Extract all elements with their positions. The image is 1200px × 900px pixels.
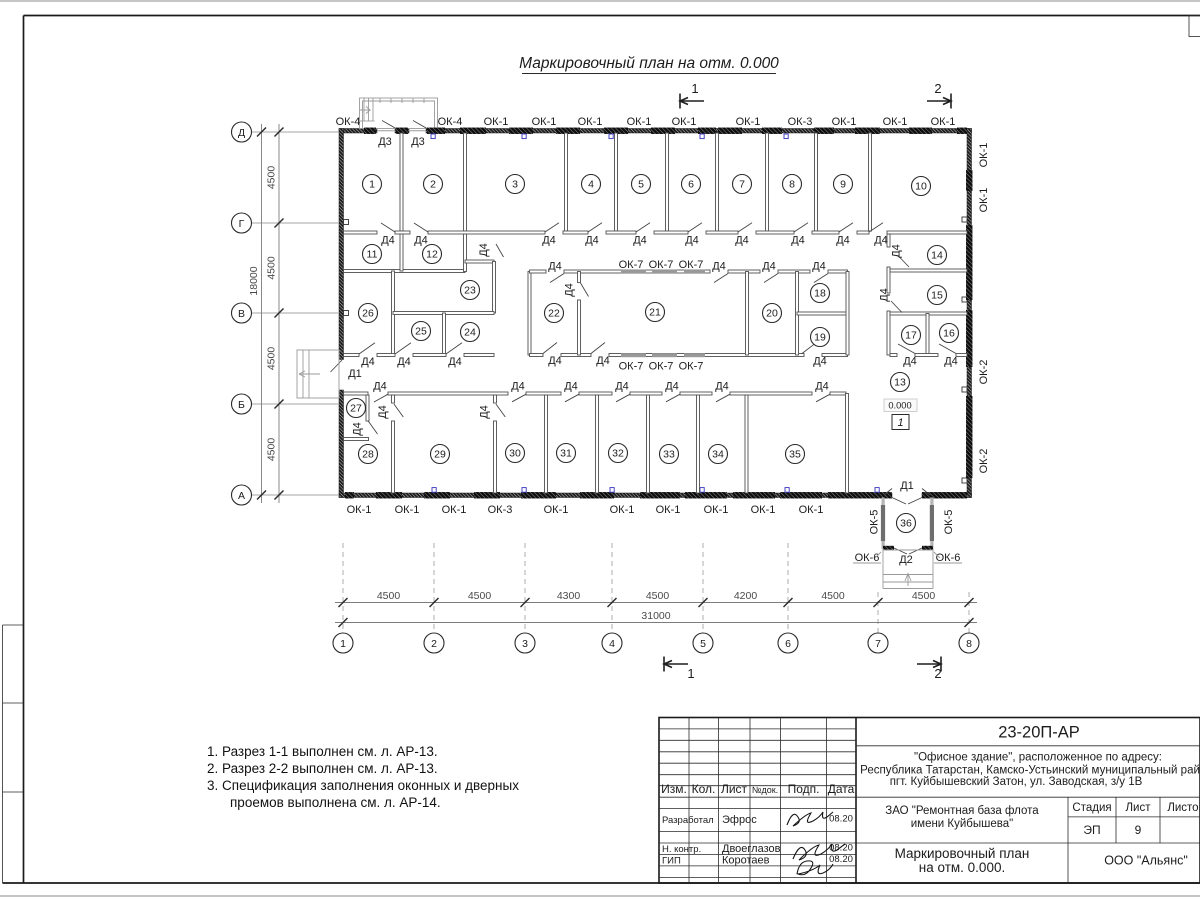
svg-text:15: 15 (931, 290, 943, 302)
svg-text:Лист: Лист (1126, 802, 1152, 814)
svg-text:ОК-1: ОК-1 (544, 504, 569, 516)
svg-text:14: 14 (931, 250, 943, 262)
svg-text:4500: 4500 (266, 256, 278, 280)
svg-text:ОК-1: ОК-1 (978, 188, 990, 213)
svg-text:Г: Г (239, 218, 245, 230)
svg-text:Д4: Д4 (548, 261, 562, 273)
svg-text:18: 18 (814, 288, 826, 300)
svg-text:10: 10 (915, 181, 927, 193)
svg-text:ОК-7: ОК-7 (679, 361, 704, 373)
svg-text:1: 1 (340, 638, 346, 650)
svg-text:Д4: Д4 (735, 235, 749, 247)
svg-text:ЗАО "Ремонтная база флота: ЗАО "Ремонтная база флота (885, 805, 1039, 817)
svg-text:Д4: Д4 (397, 356, 411, 368)
svg-text:18000: 18000 (248, 266, 260, 295)
svg-text:4: 4 (588, 179, 594, 191)
svg-text:Д4: Д4 (361, 356, 375, 368)
svg-text:Стадия: Стадия (1072, 802, 1111, 814)
svg-text:на отм. 0.000.: на отм. 0.000. (919, 860, 1005, 875)
svg-text:12: 12 (426, 249, 438, 261)
svg-text:ОК-5: ОК-5 (943, 510, 955, 535)
svg-text:ОК-1: ОК-1 (883, 116, 908, 128)
svg-text:4500: 4500 (468, 590, 492, 602)
svg-text:Д4: Д4 (448, 356, 462, 368)
svg-text:Республика Татарстан, Камско-У: Республика Татарстан, Камско-Устьинский … (860, 765, 1200, 777)
svg-text:6: 6 (688, 179, 694, 191)
svg-text:33: 33 (663, 449, 675, 461)
svg-text:ОК-4: ОК-4 (438, 116, 463, 128)
svg-text:4200: 4200 (734, 590, 758, 602)
svg-text:Д4: Д4 (903, 356, 917, 368)
svg-text:ОК-3: ОК-3 (788, 116, 813, 128)
svg-text:1: 1 (897, 417, 903, 429)
svg-text:ОК-1: ОК-1 (832, 116, 857, 128)
svg-text:4500: 4500 (821, 590, 845, 602)
svg-text:ОК-1: ОК-1 (931, 116, 956, 128)
svg-text:23-20П-АР: 23-20П-АР (998, 724, 1080, 742)
svg-text:Дата: Дата (828, 782, 855, 796)
svg-text:ОК-1: ОК-1 (978, 143, 990, 168)
svg-text:4300: 4300 (557, 590, 581, 602)
svg-text:ОК-1: ОК-1 (627, 116, 652, 128)
svg-text:ОК-2: ОК-2 (978, 449, 990, 474)
svg-text:Д4: Д4 (564, 381, 578, 393)
svg-text:В: В (238, 308, 245, 320)
svg-text:Д4: Д4 (478, 243, 490, 257)
svg-text:Д4: Д4 (633, 235, 647, 247)
svg-text:4500: 4500 (266, 166, 278, 190)
svg-text:Д: Д (238, 127, 245, 139)
svg-text:Эфрос: Эфрос (722, 814, 757, 826)
svg-text:Маркировочный план: Маркировочный план (895, 846, 1030, 861)
svg-text:ОК-1: ОК-1 (672, 116, 697, 128)
svg-text:28: 28 (362, 449, 374, 461)
svg-text:17: 17 (905, 330, 917, 342)
svg-text:34: 34 (712, 449, 724, 461)
svg-text:1. Разрез 1-1 выполнен см. л.: 1. Разрез 1-1 выполнен см. л. АР-13. (207, 744, 438, 759)
svg-text:пгт. Куйбышевский Затон, ул. З: пгт. Куйбышевский Затон, ул. Заводская, … (890, 776, 1143, 788)
svg-text:Д4: Д4 (373, 381, 387, 393)
svg-text:ОК-1: ОК-1 (484, 116, 509, 128)
svg-text:Д4: Д4 (548, 355, 562, 367)
svg-text:6: 6 (785, 638, 791, 650)
svg-text:Разработал: Разработал (662, 815, 714, 826)
svg-text:08.20: 08.20 (829, 814, 853, 825)
svg-text:ООО "Альянс": ООО "Альянс" (1104, 854, 1188, 868)
svg-text:Д4: Д4 (891, 244, 903, 258)
svg-text:5: 5 (638, 179, 644, 191)
svg-text:4500: 4500 (266, 347, 278, 371)
svg-text:Маркировочный план на отм. 0.0: Маркировочный план на отм. 0.000 (519, 55, 779, 72)
svg-text:Д4: Д4 (944, 356, 958, 368)
svg-text:Д4: Д4 (762, 261, 776, 273)
svg-text:2: 2 (934, 81, 941, 96)
svg-text:ОК-1: ОК-1 (751, 504, 776, 516)
svg-text:Коротаев: Коротаев (722, 855, 770, 867)
svg-text:21: 21 (649, 307, 661, 319)
svg-text:ОК-5: ОК-5 (869, 510, 881, 535)
svg-text:Д1: Д1 (900, 480, 914, 492)
svg-text:ОК-1: ОК-1 (347, 504, 372, 516)
svg-text:ОК-1: ОК-1 (799, 504, 824, 516)
svg-text:9: 9 (1135, 823, 1142, 837)
svg-text:А: А (238, 490, 245, 502)
svg-text:3. Спецификация заполнения око: 3. Спецификация заполнения оконных и две… (207, 778, 519, 793)
svg-text:Д4: Д4 (414, 235, 428, 247)
svg-text:Д4: Д4 (381, 235, 395, 247)
svg-text:Подп.: Подп. (788, 782, 820, 796)
svg-text:Н. контр.: Н. контр. (662, 844, 701, 855)
svg-text:35: 35 (789, 449, 801, 461)
svg-text:"Офисное здание", расположенно: "Офисное здание", расположенное по адрес… (914, 752, 1162, 764)
svg-text:31000: 31000 (641, 610, 670, 622)
svg-text:13: 13 (894, 377, 906, 389)
svg-text:ОК-1: ОК-1 (442, 504, 467, 516)
svg-text:8: 8 (789, 179, 795, 191)
svg-text:Д4: Д4 (715, 381, 729, 393)
svg-text:4500: 4500 (912, 590, 936, 602)
svg-text:9: 9 (840, 179, 846, 191)
svg-text:4500: 4500 (646, 590, 670, 602)
svg-text:Д4: Д4 (791, 235, 805, 247)
svg-text:Д4: Д4 (712, 261, 726, 273)
svg-text:08.20: 08.20 (829, 843, 853, 854)
svg-text:ОК-6: ОК-6 (936, 552, 961, 564)
svg-text:7: 7 (739, 179, 745, 191)
svg-text:ОК-1: ОК-1 (532, 116, 557, 128)
svg-text:ОК-7: ОК-7 (679, 259, 704, 271)
svg-text:0.000: 0.000 (888, 400, 911, 410)
svg-text:ОК-7: ОК-7 (619, 259, 644, 271)
svg-text:Д4: Д4 (596, 355, 610, 367)
svg-text:Д1: Д1 (348, 368, 362, 380)
svg-text:Д4: Д4 (874, 235, 888, 247)
svg-text:27: 27 (350, 403, 362, 415)
svg-text:7: 7 (875, 638, 881, 650)
svg-text:2: 2 (430, 179, 436, 191)
svg-text:ОК-7: ОК-7 (649, 361, 674, 373)
svg-text:Д4: Д4 (812, 261, 826, 273)
svg-text:19: 19 (814, 332, 826, 344)
svg-text:32: 32 (612, 448, 624, 460)
svg-text:11: 11 (367, 249, 378, 261)
svg-text:08.20: 08.20 (829, 854, 853, 865)
svg-text:ОК-7: ОК-7 (619, 361, 644, 373)
svg-text:3: 3 (522, 638, 528, 650)
svg-text:4: 4 (609, 638, 615, 650)
svg-text:Двоеглазов: Двоеглазов (722, 843, 781, 855)
svg-text:Изм.: Изм. (661, 782, 687, 796)
svg-text:Д4: Д4 (564, 283, 576, 297)
svg-text:ГИП: ГИП (662, 856, 681, 867)
svg-text:3: 3 (512, 179, 518, 191)
svg-text:5: 5 (700, 638, 706, 650)
svg-text:36: 36 (900, 518, 912, 530)
svg-text:29: 29 (434, 449, 446, 461)
svg-text:16: 16 (943, 328, 955, 340)
svg-text:Д4: Д4 (511, 381, 525, 393)
svg-text:ОК-7: ОК-7 (649, 259, 674, 271)
svg-text:Д4: Д4 (685, 235, 699, 247)
svg-text:ОК-3: ОК-3 (488, 504, 513, 516)
svg-text:ОК-1: ОК-1 (656, 504, 681, 516)
svg-text:Лист: Лист (721, 782, 748, 796)
svg-text:8: 8 (966, 638, 972, 650)
svg-text:ОК-1: ОК-1 (395, 504, 420, 516)
svg-text:31: 31 (560, 448, 572, 460)
svg-text:ОК-1: ОК-1 (610, 504, 635, 516)
svg-text:1: 1 (691, 81, 698, 96)
svg-text:2: 2 (431, 638, 437, 650)
svg-text:24: 24 (464, 327, 476, 339)
svg-text:ОК-1: ОК-1 (578, 116, 603, 128)
svg-text:Д4: Д4 (815, 381, 829, 393)
svg-text:Д4: Д4 (377, 405, 389, 419)
svg-text:26: 26 (362, 308, 374, 320)
svg-text:Кол.: Кол. (692, 782, 716, 796)
svg-text:22: 22 (548, 308, 560, 320)
svg-text:1: 1 (369, 179, 375, 191)
svg-text:23: 23 (464, 285, 476, 297)
svg-text:1: 1 (687, 666, 694, 681)
svg-text:4500: 4500 (266, 438, 278, 462)
svg-text:имени Куйбышева": имени Куйбышева" (911, 818, 1014, 830)
svg-text:Д4: Д4 (879, 288, 891, 302)
svg-text:20: 20 (766, 308, 778, 320)
svg-text:Д4: Д4 (585, 235, 599, 247)
svg-text:Д3: Д3 (411, 136, 425, 148)
svg-text:Д2: Д2 (899, 554, 913, 566)
svg-text:Б: Б (238, 399, 245, 411)
svg-text:№док.: №док. (752, 785, 778, 795)
svg-text:проемов выполнена см. л. АР-14: проемов выполнена см. л. АР-14. (230, 795, 441, 810)
svg-text:ОК-6: ОК-6 (855, 552, 880, 564)
svg-text:4500: 4500 (377, 590, 401, 602)
svg-text:Д4: Д4 (479, 405, 491, 419)
svg-text:2. Разрез 2-2 выполнен см. л.: 2. Разрез 2-2 выполнен см. л. АР-13. (207, 761, 438, 776)
svg-text:ОК-1: ОК-1 (704, 504, 729, 516)
svg-text:Д4: Д4 (836, 235, 850, 247)
svg-text:25: 25 (415, 326, 427, 338)
svg-text:Д4: Д4 (615, 381, 629, 393)
svg-text:ОК-2: ОК-2 (978, 360, 990, 385)
svg-text:Д4: Д4 (813, 356, 827, 368)
svg-text:Д4: Д4 (352, 422, 364, 436)
svg-text:ОК-4: ОК-4 (336, 116, 361, 128)
svg-text:ЭП: ЭП (1083, 823, 1100, 837)
svg-text:Д4: Д4 (665, 381, 679, 393)
svg-text:30: 30 (509, 448, 521, 460)
svg-text:Д3: Д3 (378, 136, 392, 148)
svg-text:ОК-1: ОК-1 (736, 116, 761, 128)
svg-text:Листов: Листов (1167, 802, 1200, 814)
svg-text:Д4: Д4 (542, 235, 556, 247)
